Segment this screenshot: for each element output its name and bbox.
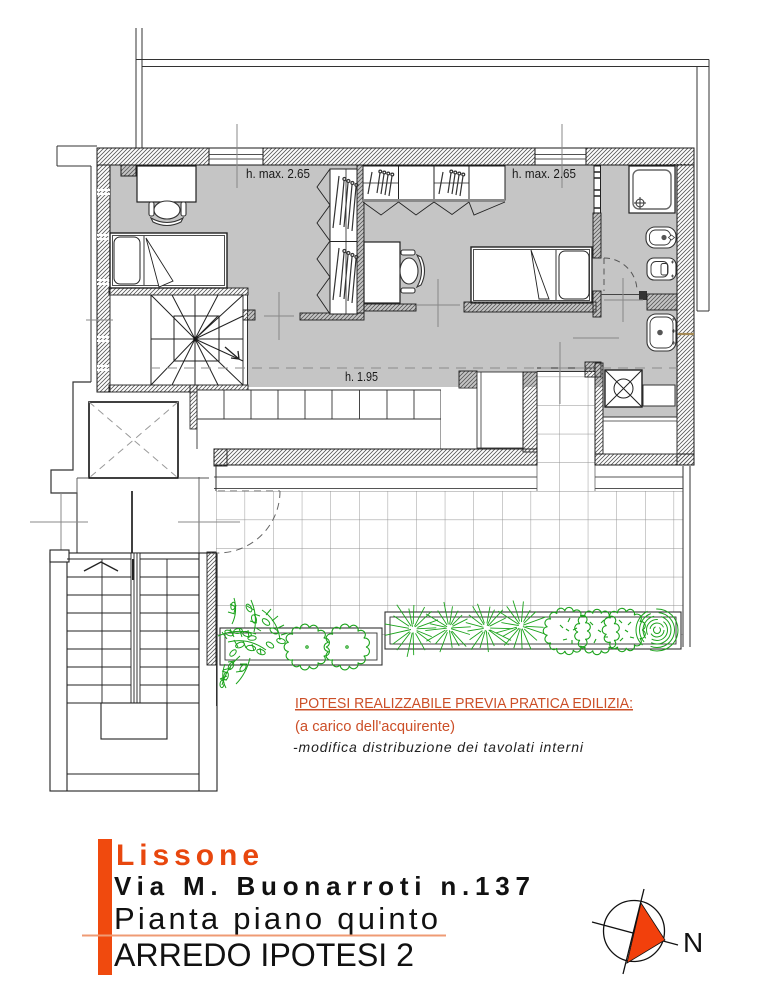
svg-text:-modifica distribuzione dei ta: -modifica distribuzione dei tavolati int… — [293, 739, 584, 755]
svg-text:h. 1.95: h. 1.95 — [345, 370, 378, 384]
svg-text:IPOTESI REALIZZABILE PREVIA PR: IPOTESI REALIZZABILE PREVIA PRATICA EDIL… — [295, 695, 633, 712]
svg-text:(a carico dell'acquirente): (a carico dell'acquirente) — [295, 718, 455, 735]
svg-text:ARREDO IPOTESI 2: ARREDO IPOTESI 2 — [114, 937, 414, 973]
svg-text:h. max. 2.65: h. max. 2.65 — [512, 167, 576, 181]
svg-text:Pianta piano quinto: Pianta piano quinto — [114, 901, 438, 936]
svg-text:h. max. 2.65: h. max. 2.65 — [246, 167, 310, 181]
svg-text:N: N — [683, 927, 703, 958]
